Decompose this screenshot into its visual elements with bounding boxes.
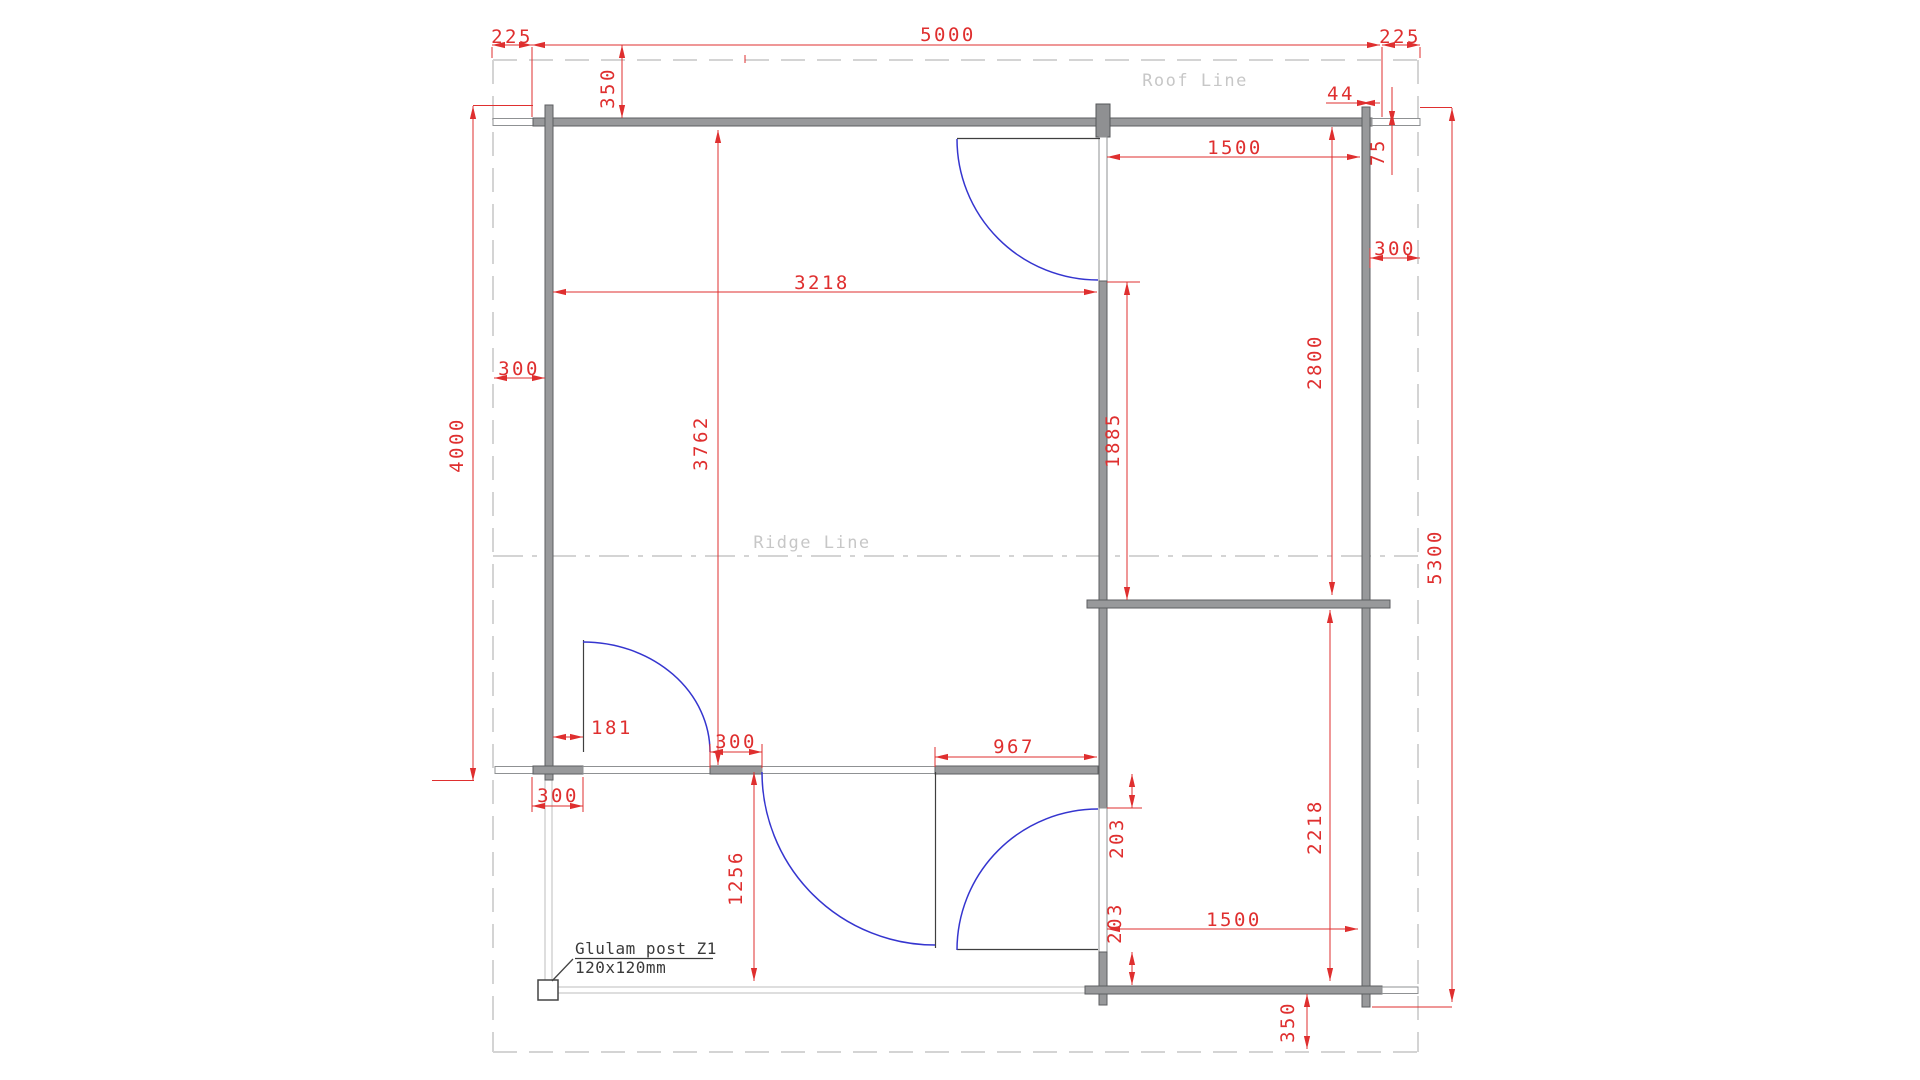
interior-wall-top-post: [1096, 104, 1110, 137]
interior-wall-bottom-stub: [1099, 952, 1107, 1005]
middle-wall: [1087, 600, 1390, 608]
dim-1500-top-text: 1500: [1207, 137, 1263, 159]
dim-350-bottom-text: 350: [1277, 1001, 1299, 1043]
glulam-label-line2: 120x120mm: [575, 958, 666, 977]
dim-5000-text: 5000: [920, 24, 976, 46]
left-wall: [545, 105, 553, 780]
top-wall-sill-left: [493, 119, 533, 126]
room-bottom-wall-sill: [495, 767, 533, 774]
roof-outline: [493, 60, 1418, 1052]
dim-203-upper-text: 203: [1106, 817, 1128, 859]
top-wall-sill-right: [1372, 119, 1420, 126]
door1-swing-arc: [957, 139, 1098, 280]
dim-350-top-text: 350: [597, 67, 619, 109]
door3-swing-arc: [762, 772, 935, 945]
dim-300-stub-text: 300: [715, 731, 757, 753]
dim-75-text: 75: [1367, 138, 1389, 166]
dim-3762-text: 3762: [690, 415, 712, 471]
roof-line-label: Roof Line: [1142, 71, 1248, 91]
dim-181-text: 181: [591, 717, 633, 739]
dim-203-lower-text: 203: [1104, 902, 1126, 944]
dim-5300-text: 5300: [1424, 529, 1446, 585]
glulam-label-line1: Glulam post Z1: [575, 939, 717, 958]
room-bottom-wall-opening2: [762, 767, 935, 774]
glulam-post-symbol: [538, 980, 558, 1000]
dim-44-text: 44: [1327, 83, 1355, 105]
glulam-leader-line: [552, 959, 573, 981]
ridge-line-label: Ridge Line: [753, 533, 870, 553]
top-wall: [533, 118, 1372, 126]
interior-wall: [1099, 281, 1107, 808]
dim-1500-bottom-text: 1500: [1206, 909, 1262, 931]
bottom-wall-sill-right: [1382, 987, 1418, 994]
room-bottom-wall-right: [935, 766, 1098, 774]
terrace-edge-bottom: [545, 987, 1085, 993]
room-bottom-wall-opening1: [583, 767, 710, 774]
bottom-wall: [1085, 986, 1382, 994]
dim-225-right-text: 225: [1379, 26, 1421, 48]
dim-2218-text: 2218: [1304, 799, 1326, 855]
door4-swing-arc: [957, 809, 1098, 950]
dim-1256-text: 1256: [725, 850, 747, 906]
dimension-texts: 225 5000 225 350 44 75 300 1500 3218 300…: [446, 24, 1446, 1043]
dim-1885-text: 1885: [1102, 412, 1124, 468]
room-bottom-wall-left: [533, 766, 583, 774]
dim-2800-text: 2800: [1304, 334, 1326, 390]
dim-3218-text: 3218: [794, 272, 850, 294]
floor-plan-page: Roof Line Ridge Line: [0, 0, 1920, 1080]
dimension-lines: [432, 45, 1452, 1049]
dim-300-bottom-left-text: 300: [537, 785, 579, 807]
interior-wall-door-opening-top: [1099, 137, 1107, 281]
dim-4000-text: 4000: [446, 417, 468, 473]
right-wall: [1362, 107, 1370, 1007]
dim-967-text: 967: [993, 736, 1035, 758]
dim-225-left-text: 225: [491, 26, 533, 48]
floor-plan-svg: Roof Line Ridge Line: [0, 0, 1920, 1080]
dim-300-left-text: 300: [498, 358, 540, 380]
dim-300-right-text: 300: [1374, 238, 1416, 260]
terrace-edge-left: [545, 780, 552, 987]
